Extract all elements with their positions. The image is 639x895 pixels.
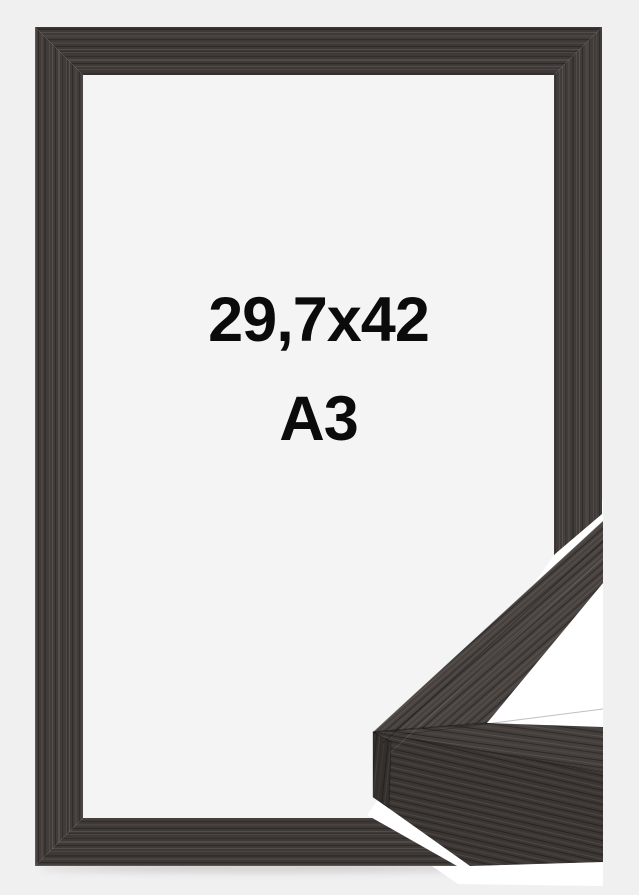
corner-detail xyxy=(0,0,639,895)
product-image[interactable]: 29,7x42 A3 xyxy=(0,0,639,895)
moulding-end-face xyxy=(373,732,391,808)
